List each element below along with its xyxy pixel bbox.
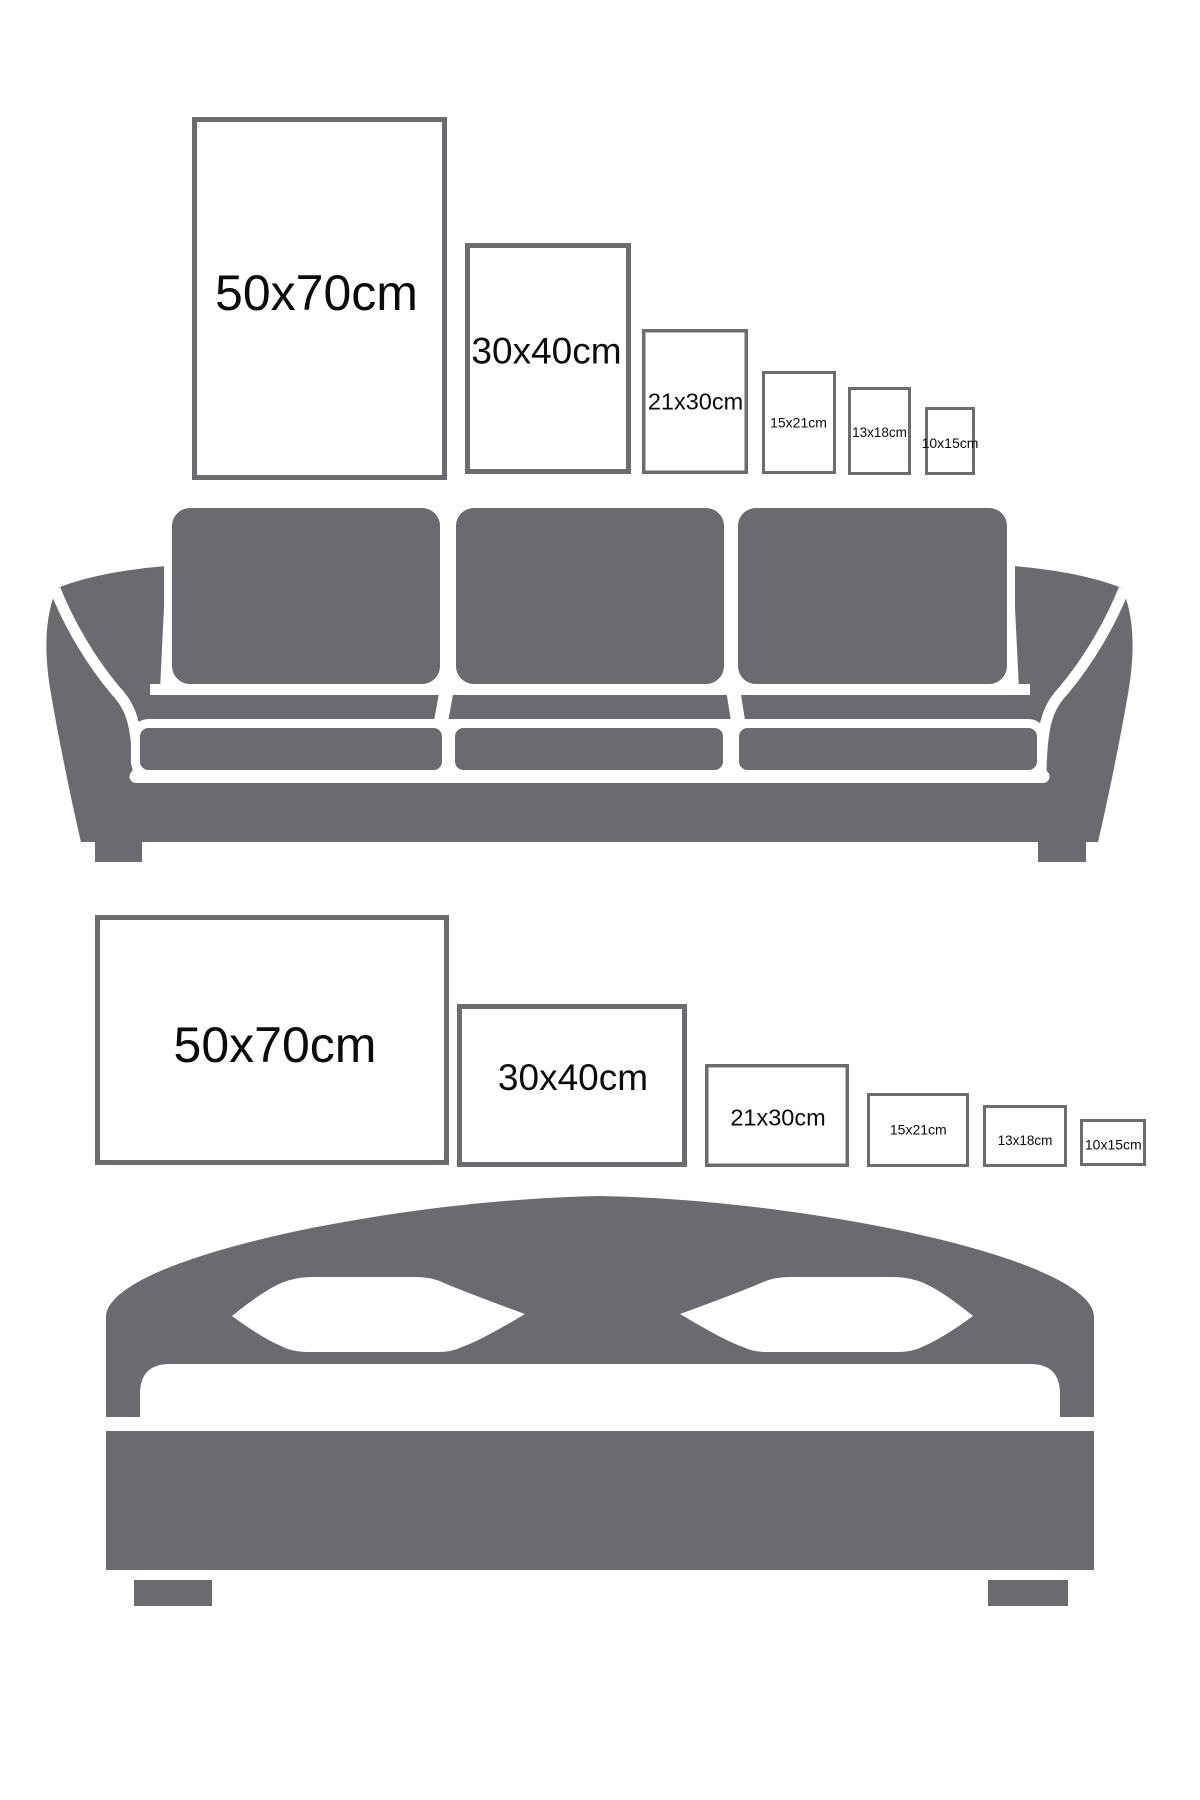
svg-text:13x18cm: 13x18cm — [998, 1133, 1053, 1148]
svg-text:50x70cm: 50x70cm — [215, 265, 418, 321]
svg-text:15x21cm: 15x21cm — [890, 1121, 947, 1137]
svg-text:21x30cm: 21x30cm — [648, 389, 743, 415]
svg-text:21x30cm: 21x30cm — [730, 1105, 825, 1131]
svg-text:10x15cm: 10x15cm — [1085, 1137, 1142, 1153]
svg-text:30x40cm: 30x40cm — [471, 331, 621, 372]
svg-text:50x70cm: 50x70cm — [174, 1017, 377, 1073]
svg-text:13x18cm: 13x18cm — [852, 425, 907, 440]
svg-text:15x21cm: 15x21cm — [770, 414, 827, 430]
svg-text:10x15cm: 10x15cm — [922, 435, 979, 451]
svg-text:30x40cm: 30x40cm — [498, 1057, 648, 1098]
